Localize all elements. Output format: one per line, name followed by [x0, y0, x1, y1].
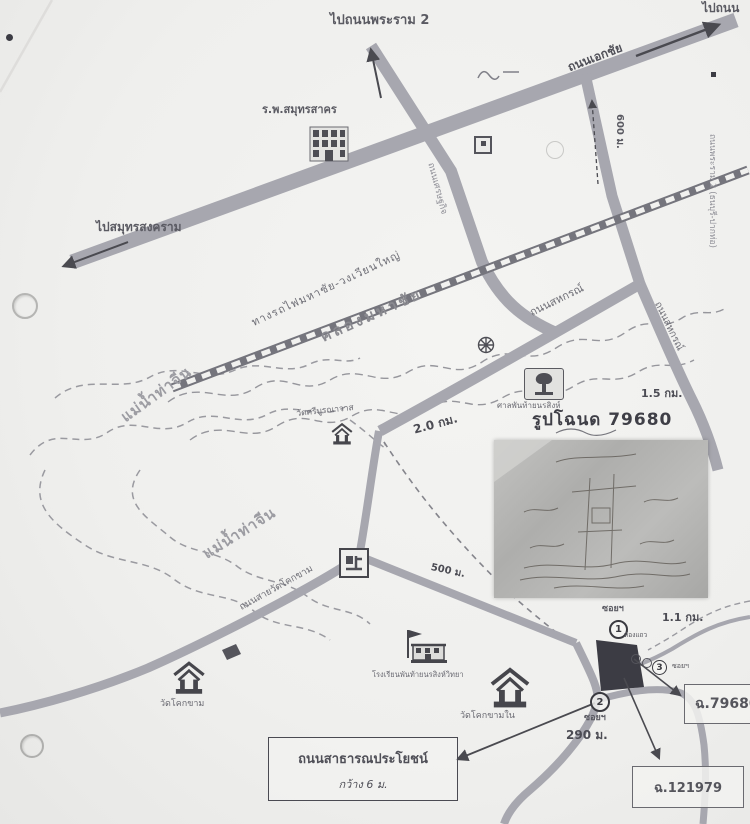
- land-parcel: [596, 640, 644, 691]
- small-circle-mark: [631, 654, 641, 664]
- public-road-note-box: ถนนสาธารณประโยชน์ กว้าง 6 ม.: [268, 737, 458, 801]
- soi1-number: 1: [615, 624, 622, 635]
- road-rama2-bypass-label: ถนนพระราม 2 (ธนบุรี-ปากท่อ): [707, 134, 716, 248]
- soi2-number: 2: [597, 697, 604, 708]
- scribble-mark: [478, 72, 519, 80]
- river-tha-chin-outline: [30, 358, 386, 640]
- scan-dot: [6, 34, 13, 41]
- hospital-label: ร.พ.สมุทรสาคร: [262, 104, 337, 116]
- soi3-number-badge: 3: [652, 660, 667, 675]
- school-building-icon: [401, 628, 447, 668]
- distance-600m-label: 600 ม.: [614, 114, 625, 149]
- wat-khokkham-nai-label: วัดโคกขามใน: [460, 712, 515, 722]
- distance-1-5km-label: 1.5 กม.: [641, 388, 682, 400]
- deed-ref-121979: ฉ.121979: [654, 777, 722, 798]
- road-sahakorn-top: [585, 74, 640, 284]
- distance-290m-label: 290 ม.: [566, 729, 608, 742]
- road-soi-1: [638, 617, 750, 665]
- wat-khokkham-label: วัดโคกขาม: [160, 700, 204, 710]
- sluice-gate-icon: [479, 338, 494, 353]
- landmark-square-icon: [474, 136, 492, 154]
- deed-ref-121979-box: ฉ.121979: [632, 766, 744, 808]
- punch-hole: [20, 734, 44, 758]
- soi3-label: ซอยฯ: [672, 663, 689, 671]
- soi2-number-badge: 2: [590, 692, 610, 712]
- soi2-label: ซอยฯ: [584, 714, 606, 724]
- bridge-mark: [222, 644, 241, 660]
- arrow-ekachai-northeast: [636, 25, 718, 56]
- distance-1-1km-label: 1.1 กม.: [662, 612, 703, 624]
- direction-rama2-label: ไปถนนพระราม 2: [330, 14, 429, 28]
- small-circle-mark: [642, 658, 652, 668]
- public-road-note-line1: ถนนสาธารณประโยชน์: [269, 748, 457, 769]
- dot-mark: [711, 72, 716, 77]
- deed-title: รูปโฉนด 79680: [532, 411, 672, 430]
- soi3-number: 3: [656, 663, 662, 673]
- punch-hole: [12, 293, 38, 319]
- temple-icon-wat-khokkham-nai: [483, 666, 537, 710]
- road-junction-south: [359, 431, 379, 557]
- deed-inset-photo: [494, 440, 708, 598]
- hospital-icon: [309, 126, 349, 162]
- direction-top-right-label: ไปถนน: [702, 2, 739, 15]
- direction-samut-songkhram-label: ไปสมุทรสงคราม: [96, 221, 182, 234]
- deed-ref-79680: ฉ.79680: [695, 693, 750, 715]
- school-label: โรงเรียนพันท้ายนรสิงห์วิทยา: [372, 671, 464, 679]
- page-corner-fold: [0, 0, 52, 92]
- public-road-note-line2: กว้าง 6 ม.: [269, 775, 457, 793]
- soi-canal-dashes: [648, 601, 750, 650]
- scanned-map-page: ไปถนนพระราม 2 ไปถนน ไปสมุทรสงคราม ร.พ.สม…: [0, 0, 750, 824]
- shrine-icon: [524, 368, 564, 400]
- deed-ref-79680-box: ฉ.79680: [684, 684, 750, 724]
- deed-sketch-lines: [494, 440, 708, 598]
- temple-icon-wat-sri-buranawat: [328, 422, 356, 446]
- soi1-label: ซอยฯ: [602, 605, 624, 615]
- temple-icon-wat-khokkham: [168, 660, 210, 696]
- scan-stain: [546, 141, 564, 159]
- school-box-icon: [339, 548, 369, 578]
- rowhouses-label: ห้องแถว: [624, 632, 647, 639]
